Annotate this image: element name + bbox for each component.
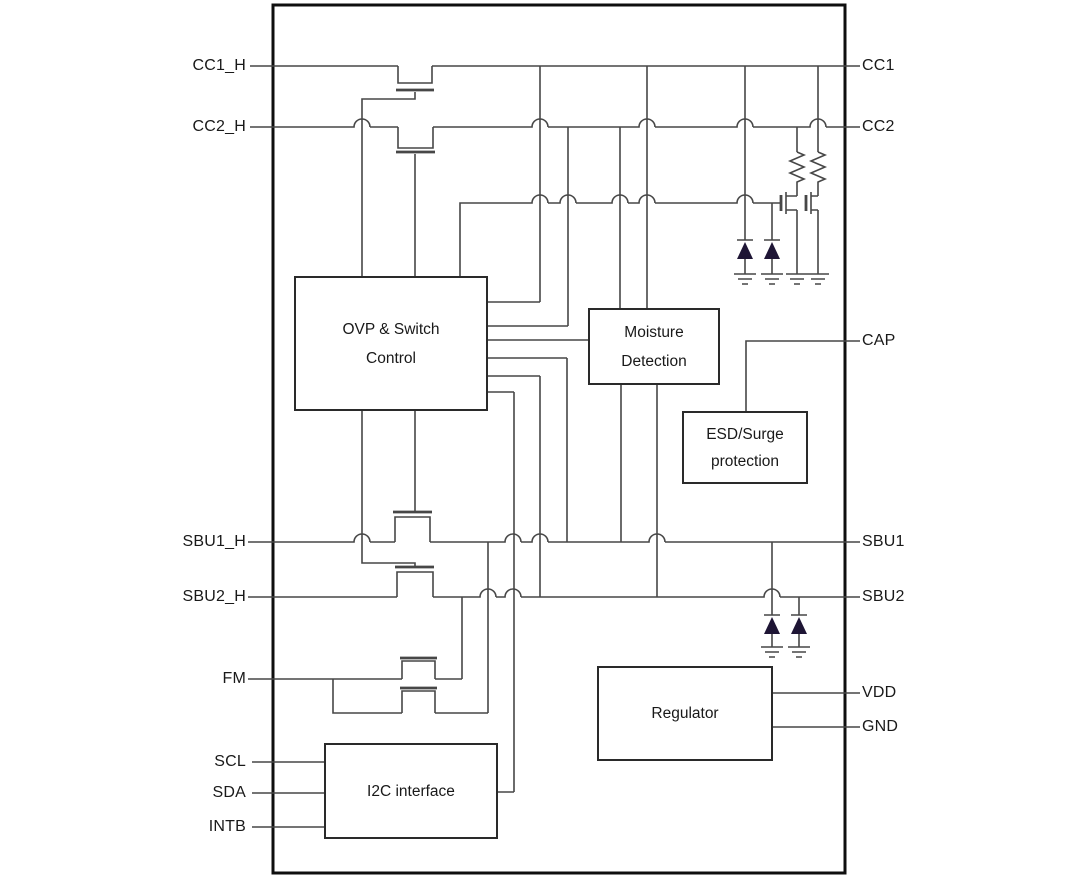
sbu2-net-wire [248,572,860,597]
i2c-interface-label: I2C interface [325,744,497,838]
block-label-line: Detection [621,347,686,376]
sbu-switch-gate-wires [362,410,415,567]
sbu-esd-diodes [764,615,807,647]
pin-label-cc2-h: CC2_H [126,116,246,138]
pin-label-sda: SDA [126,782,246,804]
block-diagram: OVP & Switch Control Moisture Detection … [0,0,1080,878]
fm-mosfet-gate-bars [400,658,437,688]
block-label-line: OVP & Switch [342,315,439,344]
pin-label-sbu2-h: SBU2_H [126,586,246,608]
pin-label-scl: SCL [126,751,246,773]
cc-diode-wires [737,203,780,274]
pin-label-vdd: VDD [862,682,896,704]
clamp-gate-bars [781,195,806,211]
cc-clamp-mosfets [781,192,818,274]
cc-switch-gate-wires [362,92,415,277]
block-label-line: ESD/Surge [706,421,784,448]
pin-label-cc1: CC1 [862,55,895,77]
block-label-line: Control [366,344,416,373]
pin-label-cc2: CC2 [862,116,895,138]
block-label-line: protection [711,448,779,475]
pin-label-intb: INTB [126,816,246,838]
pin-label-cap: CAP [862,330,896,352]
pin-label-sbu1: SBU1 [862,531,905,553]
fm-net-wire [248,542,488,713]
esd-diode-icon [764,242,780,259]
cap-net-wire [746,341,860,412]
cc-resistor-2 [811,152,825,196]
cc-resistor-1 [790,152,804,196]
pin-label-cc1-h: CC1_H [126,55,246,77]
vdd-gnd-wires [772,693,860,727]
esd-diode-icon [791,617,807,634]
sbu1-net-wire [248,517,860,542]
block-label-line: Moisture [624,318,683,347]
ovp-switch-control-label: OVP & Switch Control [295,277,487,410]
block-label-line: Regulator [651,699,718,728]
esd-diode-icon [764,617,780,634]
moisture-detection-label: Moisture Detection [589,309,719,384]
cc-esd-diodes [737,203,780,274]
pin-label-gnd: GND [862,716,898,738]
esd-surge-protection-label: ESD/Surge protection [683,412,807,483]
esd-diode-icon [737,242,753,259]
cc1-net-wire [250,66,860,83]
pin-label-sbu2: SBU2 [862,586,905,608]
pin-label-sbu1-h: SBU1_H [126,531,246,553]
clamp-arms [786,196,818,274]
pin-label-fm: FM [126,668,246,690]
regulator-label: Regulator [598,667,772,760]
cc2-net-wire [250,119,860,148]
block-label-line: I2C interface [367,777,455,806]
